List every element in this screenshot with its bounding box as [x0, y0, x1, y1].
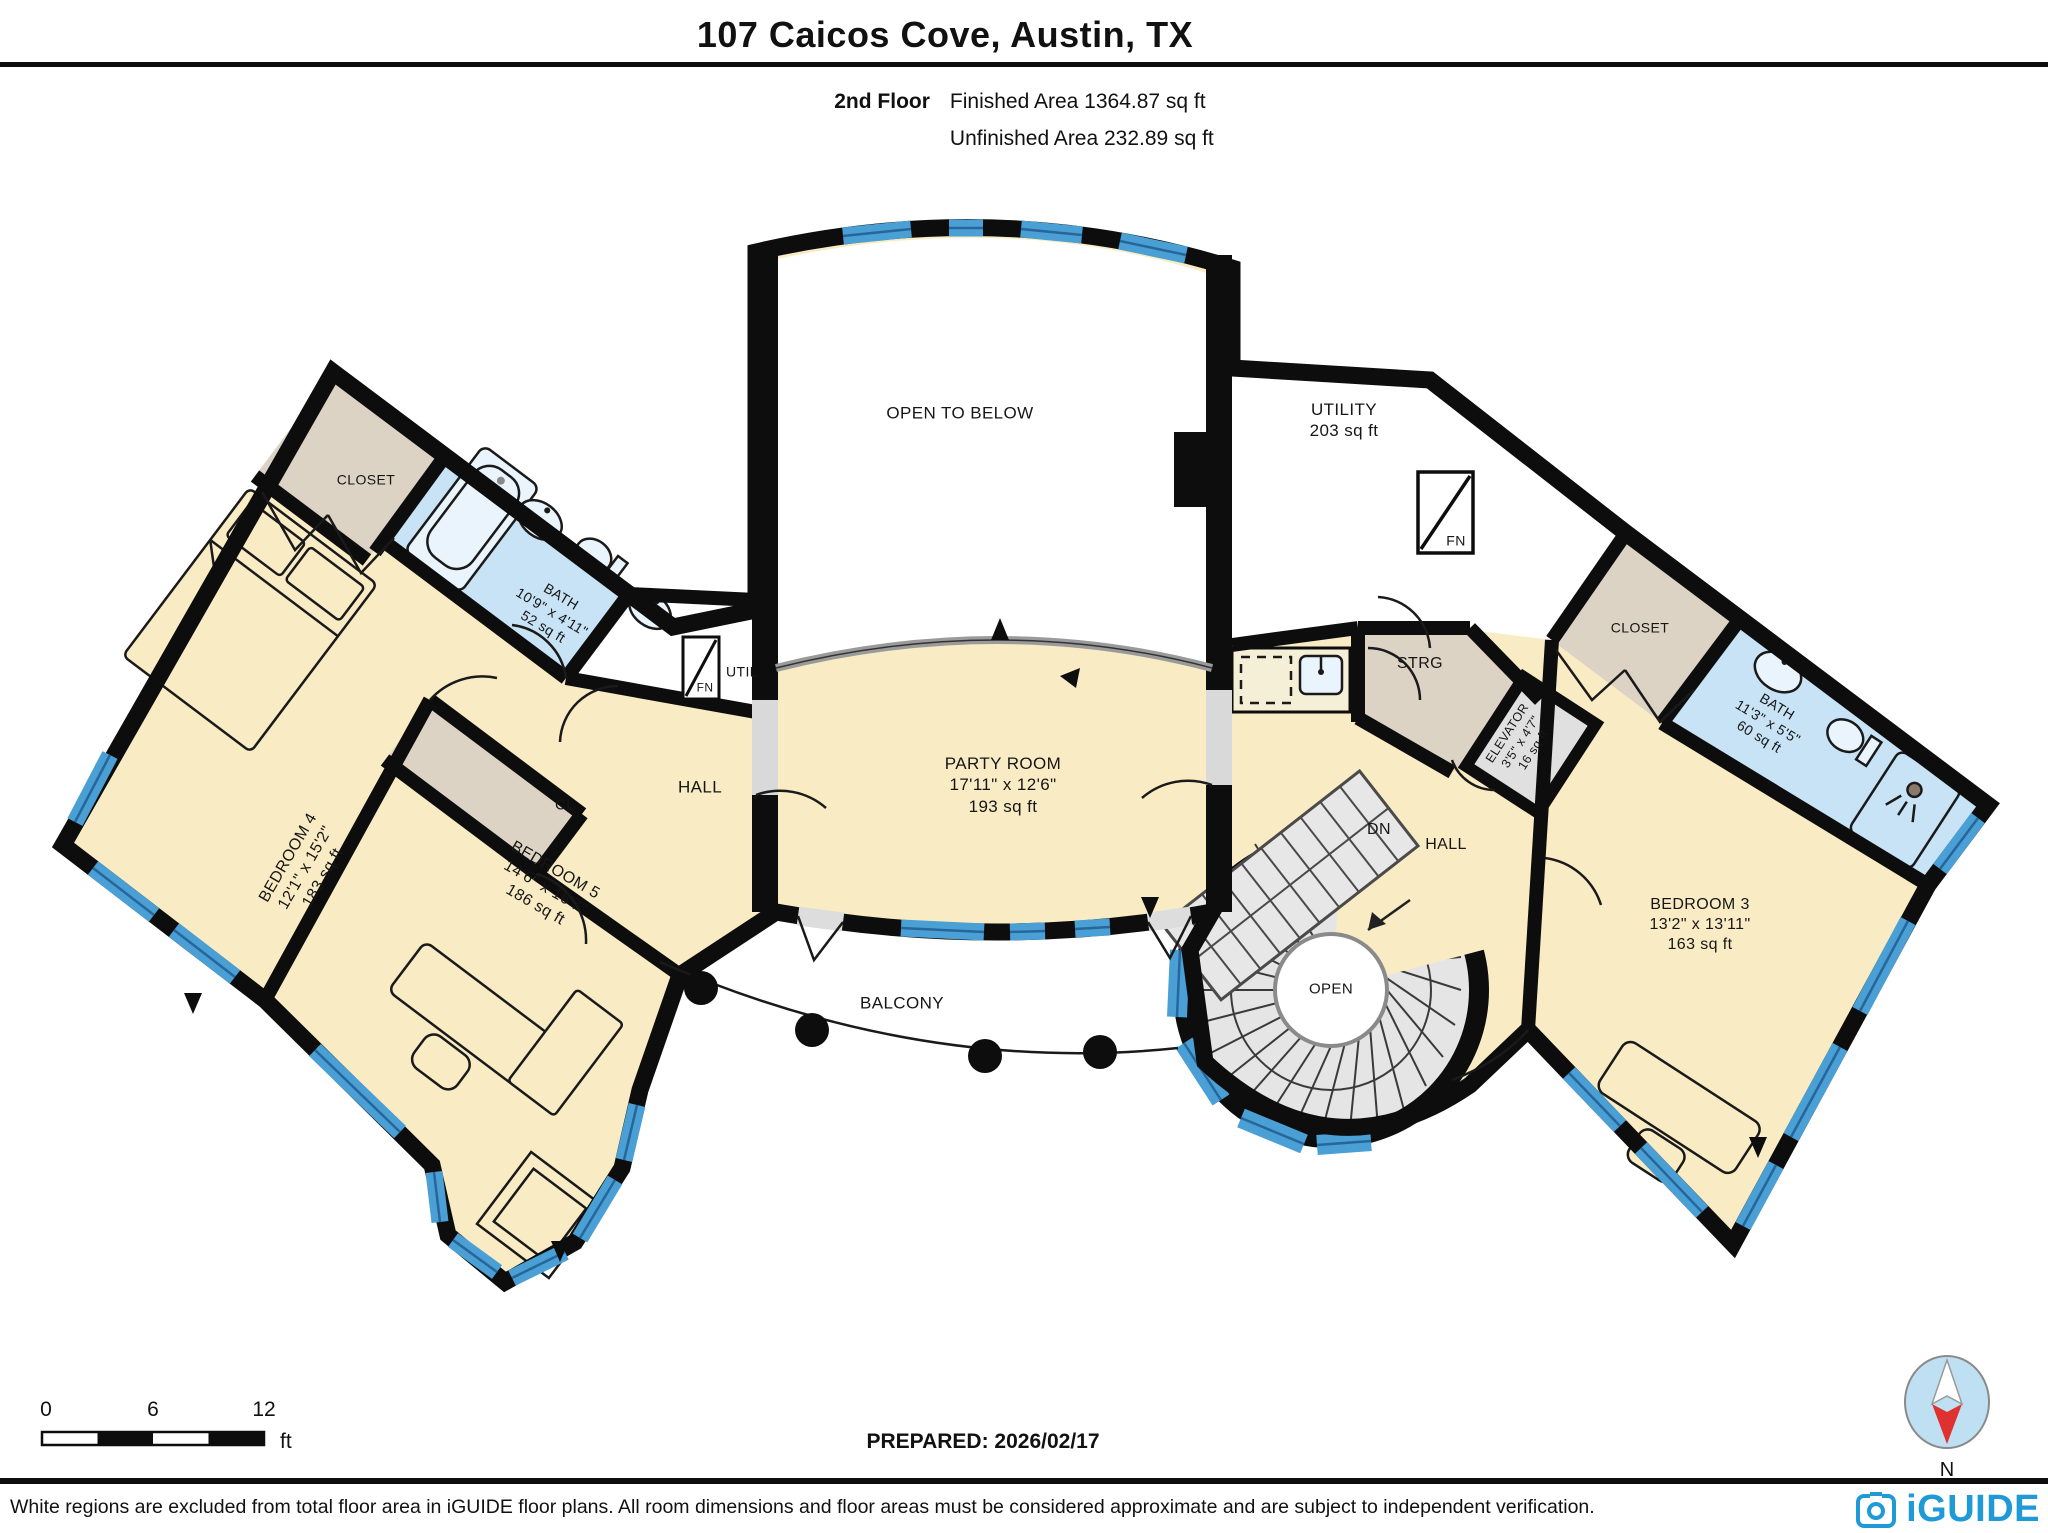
compass: N — [1899, 1352, 1995, 1482]
balcony-column — [684, 971, 718, 1005]
header-divider — [0, 62, 2048, 67]
prepared-date: PREPARED: 2026/02/17 — [866, 1430, 1099, 1454]
floor-name: 2nd Floor — [834, 90, 930, 151]
label-fn-util: FN — [697, 681, 714, 696]
label-closet-right: CLOSET — [1611, 619, 1669, 637]
scale-bar-graphic — [40, 1426, 280, 1474]
disclaimer-text: White regions are excluded from total fl… — [10, 1496, 1595, 1519]
finished-area: Finished Area 1364.87 sq ft — [950, 90, 1214, 114]
door-threshold-right — [1206, 690, 1232, 785]
scale-6: 6 — [147, 1398, 159, 1422]
compass-icon — [1899, 1352, 1995, 1452]
iguide-logo: iGUIDE — [1856, 1488, 2040, 1531]
iguide-wordmark: iGUIDE — [1906, 1488, 2040, 1531]
label-open-stair: OPEN — [1309, 981, 1353, 1000]
iguide-camera-icon — [1856, 1492, 1900, 1528]
label-open-to-below: OPEN TO BELOW — [886, 402, 1033, 423]
floor-summary: 2nd Floor Finished Area 1364.87 sq ft Un… — [0, 90, 2048, 151]
label-fn-utility: FN — [1446, 532, 1465, 550]
balcony-column — [1083, 1035, 1117, 1069]
scale-12: 12 — [252, 1398, 275, 1422]
page-title: 107 Caicos Cove, Austin, TX — [0, 14, 1890, 56]
label-hall-right: HALL — [1425, 835, 1467, 855]
label-strg: STRG — [1397, 654, 1443, 674]
scale-unit: ft — [280, 1430, 292, 1454]
label-util: UTIL — [726, 663, 758, 681]
label-cl: CL — [555, 797, 575, 816]
label-hall-left: HALL — [678, 776, 722, 797]
scale-0: 0 — [40, 1398, 52, 1422]
balcony-column — [968, 1039, 1002, 1073]
label-bedroom3: BEDROOM 313'2" x 13'11"163 sq ft — [1649, 895, 1750, 955]
label-balcony: BALCONY — [860, 992, 944, 1013]
label-closet-left: CLOSET — [337, 471, 395, 489]
wall-pillar — [1174, 432, 1208, 507]
label-party-room: PARTY ROOM17'11" x 12'6"193 sq ft — [945, 753, 1061, 817]
footer-divider — [0, 1478, 2048, 1484]
room-open-to-below — [764, 238, 1210, 668]
door-threshold-left — [752, 700, 778, 795]
unfinished-area: Unfinished Area 232.89 sq ft — [950, 127, 1214, 151]
label-utility: UTILITY203 sq ft — [1310, 399, 1379, 442]
floorplan-page: 107 Caicos Cove, Austin, TX 2nd Floor Fi… — [0, 0, 2048, 1533]
laundry-counter — [1232, 648, 1350, 712]
balcony-column — [795, 1013, 829, 1047]
label-dn: DN — [1367, 820, 1391, 840]
